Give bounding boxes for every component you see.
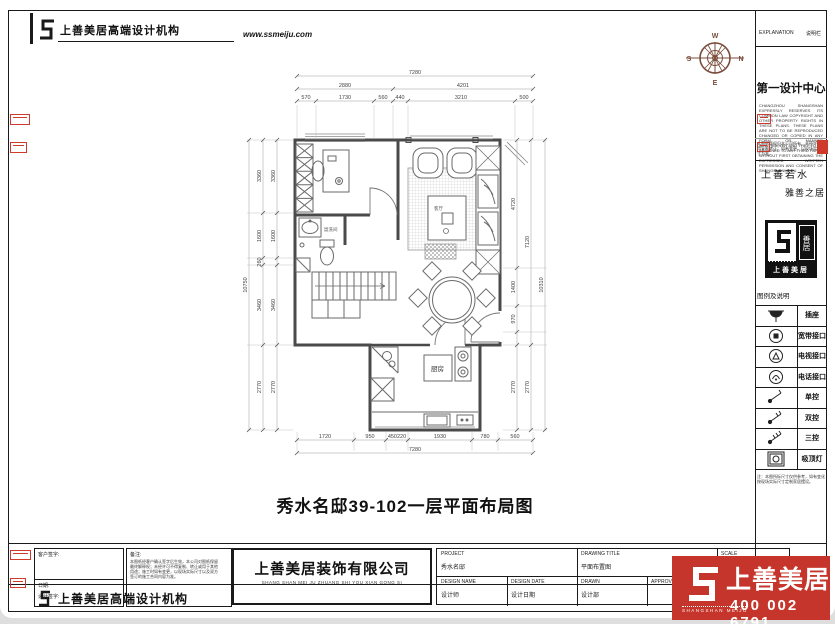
bath-label: 盥洗间 [324, 226, 338, 233]
svg-text:450220: 450220 [388, 434, 406, 440]
legend-label: 插座 [797, 305, 827, 326]
svg-text:2770: 2770 [257, 381, 263, 393]
svg-text:7120: 7120 [525, 236, 531, 248]
red-annotation [10, 114, 30, 125]
legend-row: 双控 [755, 408, 827, 429]
project-value: 秀水名邸 [441, 562, 465, 571]
tv-icon [759, 347, 793, 365]
sidebar-line-1 [755, 46, 827, 47]
frame-top [8, 10, 827, 11]
study-furniture [296, 144, 349, 212]
red-annotation [817, 140, 828, 154]
drawn-label: DRAWN [581, 579, 600, 585]
legend-row: 插座 [755, 305, 827, 326]
titleblock-divider [8, 543, 827, 544]
company-stamp: 善居 上善美居 [765, 220, 817, 278]
svg-text:1600: 1600 [257, 230, 263, 242]
client-sign-label: 客户签字: [38, 551, 59, 558]
svg-text:1720: 1720 [319, 434, 331, 440]
svg-text:2880: 2880 [339, 83, 351, 89]
red-annotation [10, 142, 27, 153]
switch-double-icon [759, 409, 793, 427]
drawn-value: 设计部 [581, 590, 599, 599]
socket-icon [759, 306, 793, 324]
svg-text:3360: 3360 [271, 170, 277, 182]
frame-left [8, 10, 9, 612]
ceiling-lamp-icon [759, 450, 793, 468]
svg-text:7280: 7280 [409, 447, 421, 453]
header-bracket [30, 13, 33, 44]
note-title: 备注: [130, 551, 141, 558]
svg-text:3460: 3460 [257, 299, 263, 311]
brand-logo-box[interactable]: 上善美居 SHANGSHAN MEIJU 400 002 6791 [672, 556, 830, 620]
svg-text:2770: 2770 [271, 381, 277, 393]
living-label: 客厅 [434, 205, 443, 212]
svg-text:7280: 7280 [409, 70, 421, 76]
company-name: 上善美居装饰有限公司 [234, 558, 430, 579]
footer-org: 上善美居高端设计机构 [58, 590, 188, 607]
plan-title: 秀水名邸39-102一层平面布局图 [235, 492, 575, 517]
stamp-s-icon [771, 227, 793, 257]
svg-text:10750: 10750 [243, 277, 249, 292]
legend-row: 单控 [755, 387, 827, 408]
svg-text:260: 260 [257, 257, 263, 266]
svg-text:3360: 3360 [257, 170, 263, 182]
brand-phone[interactable]: 400 002 6791 [730, 597, 830, 624]
legend-row: 吸顶灯 [755, 449, 827, 470]
logo-s-icon [36, 17, 56, 43]
svg-text:4720: 4720 [511, 198, 517, 210]
drawing-title-value: 平面布置图 [581, 562, 611, 571]
compass-s: S [687, 56, 692, 63]
design-date-value: 设计日期 [511, 590, 535, 599]
red-annotation [757, 114, 771, 124]
red-annotation [10, 578, 26, 588]
date-label: 日期: [38, 582, 49, 589]
legend-label: 三控 [797, 428, 827, 449]
floor-plan-svg: 盥洗间 客厅 [235, 55, 565, 480]
stamp-seal: 善居 [799, 225, 815, 260]
legend-label: 电话接口 [797, 367, 827, 388]
sidebar-explanation-cn: 说明栏 [806, 30, 821, 37]
svg-text:1400: 1400 [511, 281, 517, 293]
living-room: 客厅 [408, 146, 500, 274]
note-line: 签订的施工合同内容为准。 [130, 574, 228, 579]
svg-text:2770: 2770 [525, 381, 531, 393]
svg-text:500: 500 [519, 95, 528, 101]
red-annotation [10, 550, 31, 560]
legend-row: 三控 [755, 428, 827, 449]
sidebar-explanation-en: EXPLANATION [759, 30, 794, 36]
project-label: PROJECT [441, 551, 464, 557]
svg-text:570: 570 [301, 95, 310, 101]
phone-icon [759, 368, 793, 386]
legend-label: 电视接口 [797, 346, 827, 367]
stairs [312, 272, 396, 318]
svg-text:950: 950 [365, 434, 374, 440]
switch-single-icon [759, 388, 793, 406]
svg-text:440: 440 [395, 95, 404, 101]
broadband-icon [759, 327, 793, 345]
legend-row: 宽带接口 [755, 326, 827, 347]
company-pinyin: SHANG SHAN MEI JU ZHUANG SHI YOU XIAN GO… [234, 580, 430, 585]
design-name-label: DESIGN NAME [441, 579, 476, 585]
legend-row: 电视接口 [755, 346, 827, 367]
dimension-lines [247, 74, 547, 455]
footer-logo-s-icon [36, 589, 52, 608]
svg-text:970: 970 [511, 314, 517, 323]
compass-w: W [712, 33, 719, 40]
company-box: 上善美居装饰有限公司 SHANG SHAN MEI JU ZHUANG SHI … [232, 548, 432, 605]
brand-s-icon [682, 563, 722, 605]
compass-n: N [738, 56, 743, 63]
svg-text:3210: 3210 [455, 95, 467, 101]
legend-note: 注：本图所标尺寸仅供参考，如有变化按现场实际尺寸定制家居摆设。 [757, 474, 825, 484]
svg-text:780: 780 [480, 434, 489, 440]
drawing-sheet: 上善美居高端设计机构 www.ssmeiju.com W S N E [0, 0, 835, 618]
compass-e: E [713, 80, 718, 87]
switch-triple-icon [759, 429, 793, 447]
slogan-right: 雅善之居 [755, 186, 825, 199]
design-name-value: 设计师 [441, 590, 459, 599]
sidebar-line-2 [755, 138, 827, 139]
svg-text:3460: 3460 [271, 299, 277, 311]
svg-text:1600: 1600 [271, 230, 277, 242]
svg-text:560: 560 [510, 434, 519, 440]
svg-text:560: 560 [378, 95, 387, 101]
svg-text:10310: 10310 [539, 277, 545, 292]
red-annotation [757, 142, 770, 152]
svg-text:2770: 2770 [511, 381, 517, 393]
svg-text:1930: 1930 [434, 434, 446, 440]
header-underline [58, 41, 234, 42]
design-date-label: DESIGN DATE [511, 579, 545, 585]
header-website[interactable]: www.ssmeiju.com [243, 30, 312, 39]
brand-name: 上善美居 [726, 560, 830, 596]
screenshot-stage: 上善美居高端设计机构 www.ssmeiju.com W S N E [0, 0, 835, 624]
svg-text:4201: 4201 [457, 83, 469, 89]
compass-icon: W S N E [683, 28, 747, 88]
header-brand: 上善美居高端设计机构 [60, 22, 180, 38]
legend-title: 图例及说明 [757, 290, 790, 300]
svg-text:1730: 1730 [339, 95, 351, 101]
legend-row: 电话接口 [755, 367, 827, 388]
legend-border [755, 469, 827, 470]
legend-label: 双控 [797, 408, 827, 429]
legend-label: 宽带接口 [797, 326, 827, 347]
kitchen-fixtures [371, 347, 478, 427]
stamp-name: 上善美居 [765, 265, 817, 275]
slogan-left: 上善若水 [761, 166, 809, 181]
entry-opening [497, 311, 504, 342]
design-center-title: 第一设计中心 [755, 80, 827, 96]
drawing-title-label: DRAWING TITLE [581, 551, 620, 557]
legend-label: 吸顶灯 [797, 449, 827, 470]
kitchen-label: 厨房 [431, 364, 444, 373]
legend-label: 单控 [797, 387, 827, 408]
sidebar-line-3 [755, 160, 827, 161]
